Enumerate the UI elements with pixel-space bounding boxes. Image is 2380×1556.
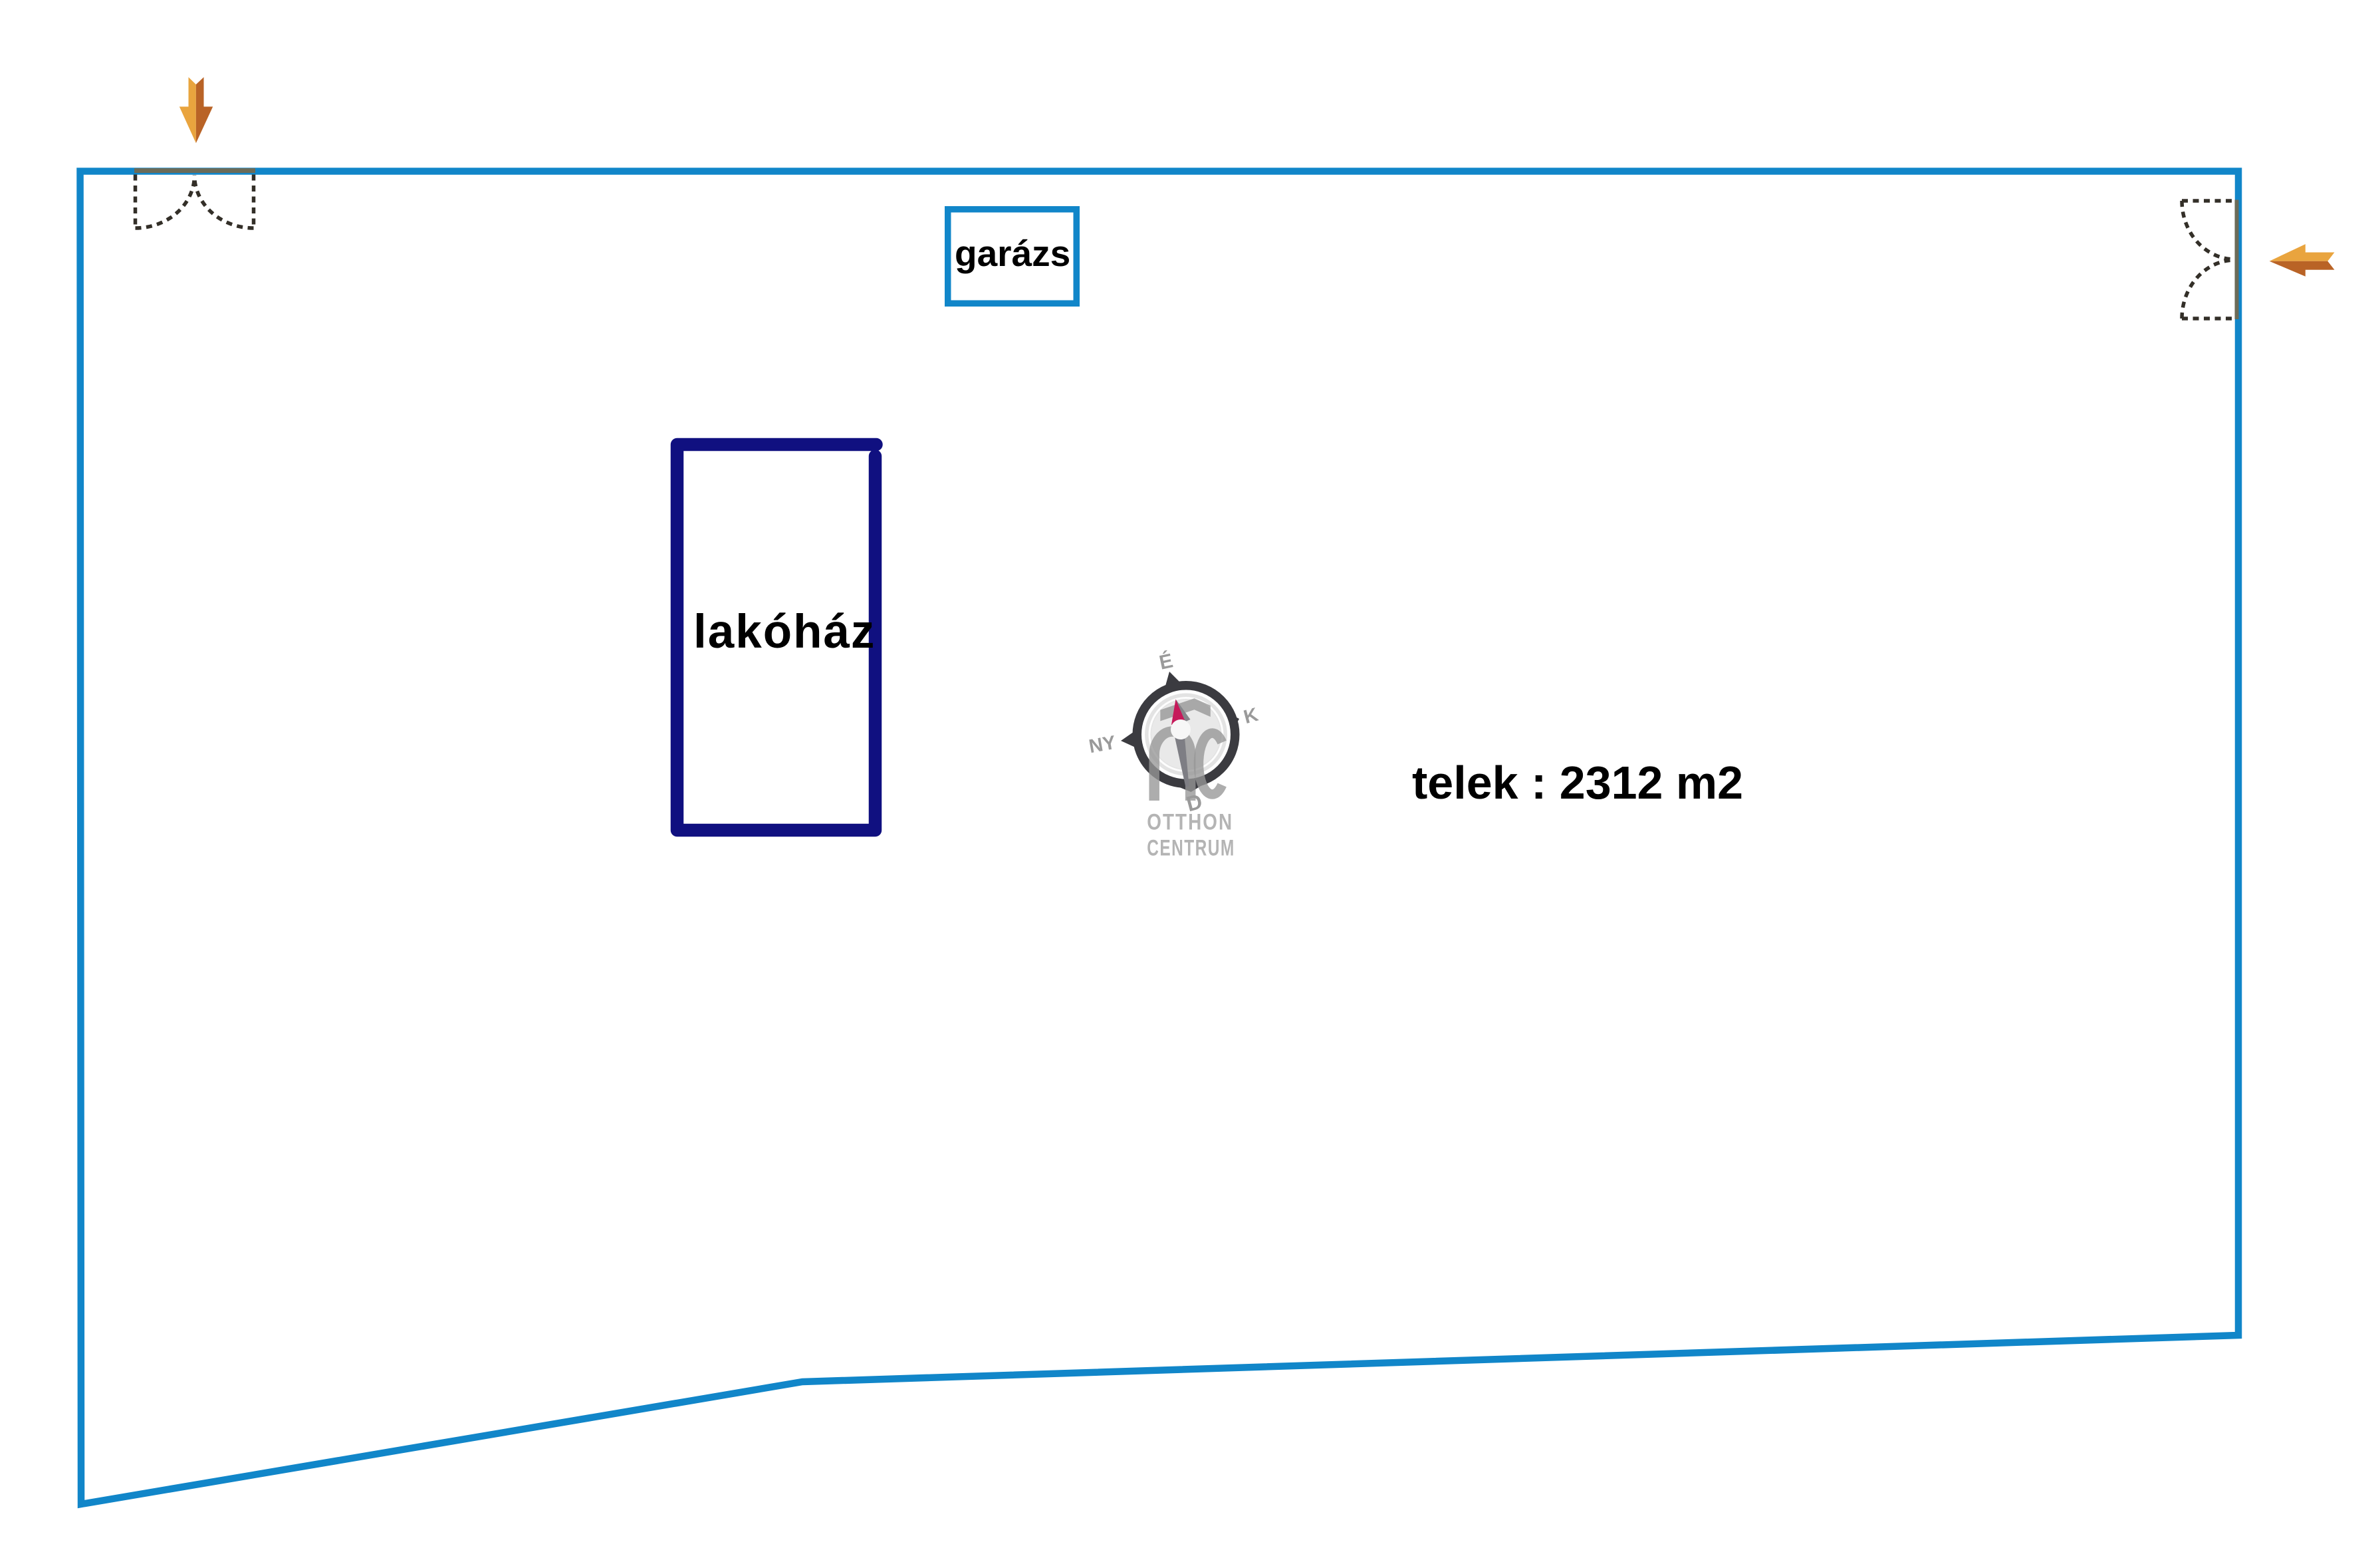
- svg-text:K: K: [1241, 704, 1260, 728]
- svg-text:CENTRUM: CENTRUM: [1147, 836, 1235, 861]
- svg-text:lakóház: lakóház: [693, 606, 876, 658]
- svg-text:OTTHON: OTTHON: [1147, 809, 1233, 835]
- svg-text:É: É: [1157, 649, 1175, 674]
- svg-text:telek : 2312 m2: telek : 2312 m2: [1412, 757, 1743, 809]
- svg-text:NY: NY: [1088, 732, 1118, 758]
- svg-text:garázs: garázs: [955, 233, 1070, 274]
